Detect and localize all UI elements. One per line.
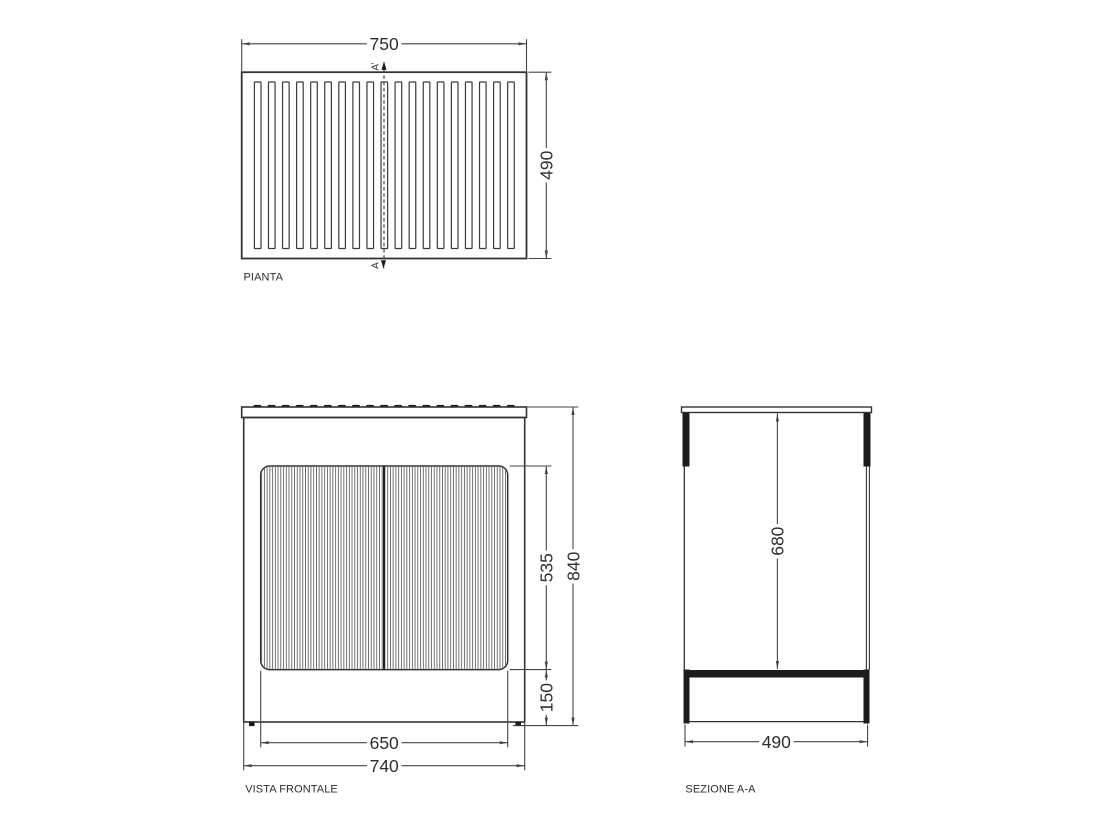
svg-text:680: 680 [768,526,788,555]
svg-text:VISTA FRONTALE: VISTA FRONTALE [245,783,338,795]
svg-text:SEZIONE A-A: SEZIONE A-A [685,784,756,796]
svg-text:150: 150 [537,683,557,712]
svg-text:840: 840 [563,551,583,580]
svg-text:490: 490 [762,732,791,752]
svg-text:A’: A’ [371,62,382,70]
svg-text:650: 650 [370,733,399,753]
svg-text:PIANTA: PIANTA [244,272,284,284]
svg-text:750: 750 [369,34,398,54]
svg-text:490: 490 [537,150,557,179]
svg-text:535: 535 [537,553,557,582]
svg-text:A: A [371,262,382,269]
svg-text:740: 740 [370,756,399,776]
